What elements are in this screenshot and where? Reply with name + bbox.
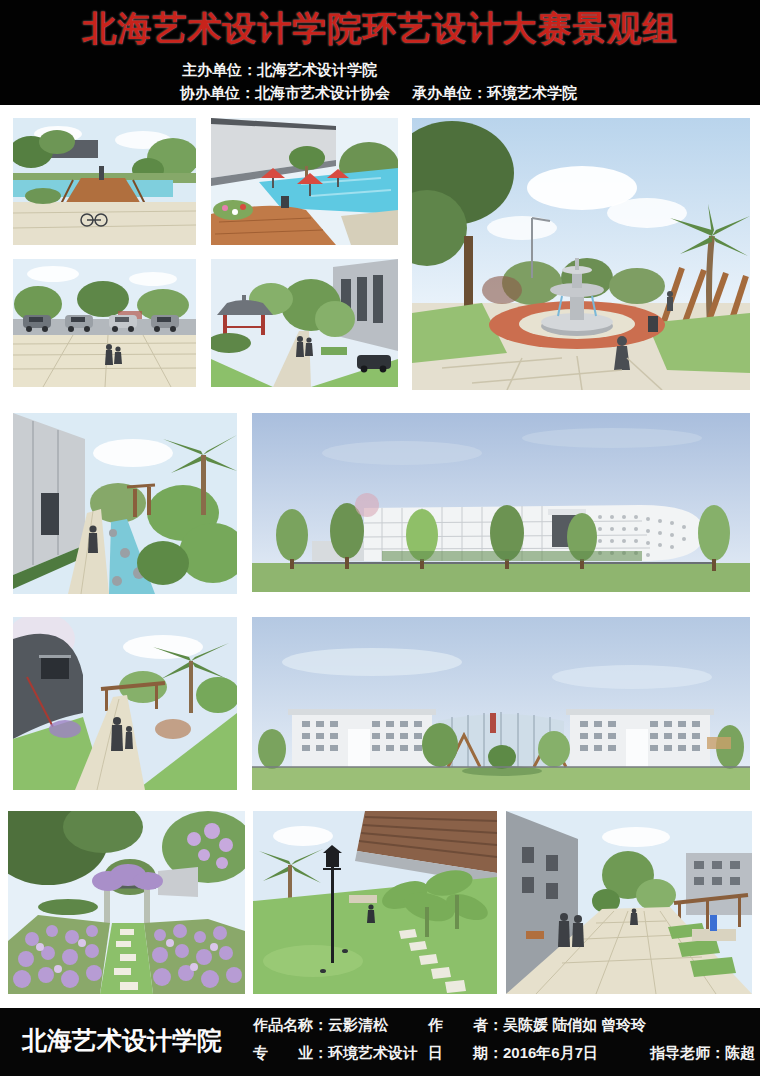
competition-poster: 北海艺术设计学院环艺设计大赛景观组 主办单位：北海艺术设计学院 协办单位：北海市… [0,0,760,1076]
render-park-bridge [13,118,196,245]
render-curved-garden-path [13,617,237,790]
authors-label: 作 者：吴陈媛 陆俏如 曾玲玲 [428,1016,646,1035]
render-campus-panorama [252,617,750,790]
major-label: 专 业：环境艺术设计 [253,1044,418,1063]
render-lawn-lamp [253,811,497,994]
host-organizer-line: 主办单位：北海艺术设计学院 [182,61,377,80]
render-palm-walkway [13,413,237,594]
poster-header: 北海艺术设计学院环艺设计大赛景观组 主办单位：北海艺术设计学院 协办单位：北海市… [0,0,760,105]
co-host-label: 协办单位：北海市艺术设计协会 [180,84,390,101]
co-organizer-line: 协办单位：北海市艺术设计协会承办单位：环境艺术学院 [180,84,577,103]
date-label: 日 期：2016年6月7日 [428,1044,598,1063]
work-title-label: 作品名称：云影清松 [253,1016,388,1035]
render-parking-plaza [13,259,196,387]
advisor-label: 指导老师：陈超 [650,1044,755,1063]
render-pedestrian-street [506,811,752,994]
render-purple-flower-garden [8,811,245,994]
render-pool-umbrellas [211,118,398,245]
poster-title: 北海艺术设计学院环艺设计大赛景观组 [0,6,760,52]
school-name: 北海艺术设计学院 [22,1024,222,1057]
undertaker-label: 承办单位：环境艺术学院 [412,84,577,101]
render-white-building-elevation [252,413,750,592]
render-fountain-plaza [412,118,750,390]
render-pavilion-path [211,259,398,387]
